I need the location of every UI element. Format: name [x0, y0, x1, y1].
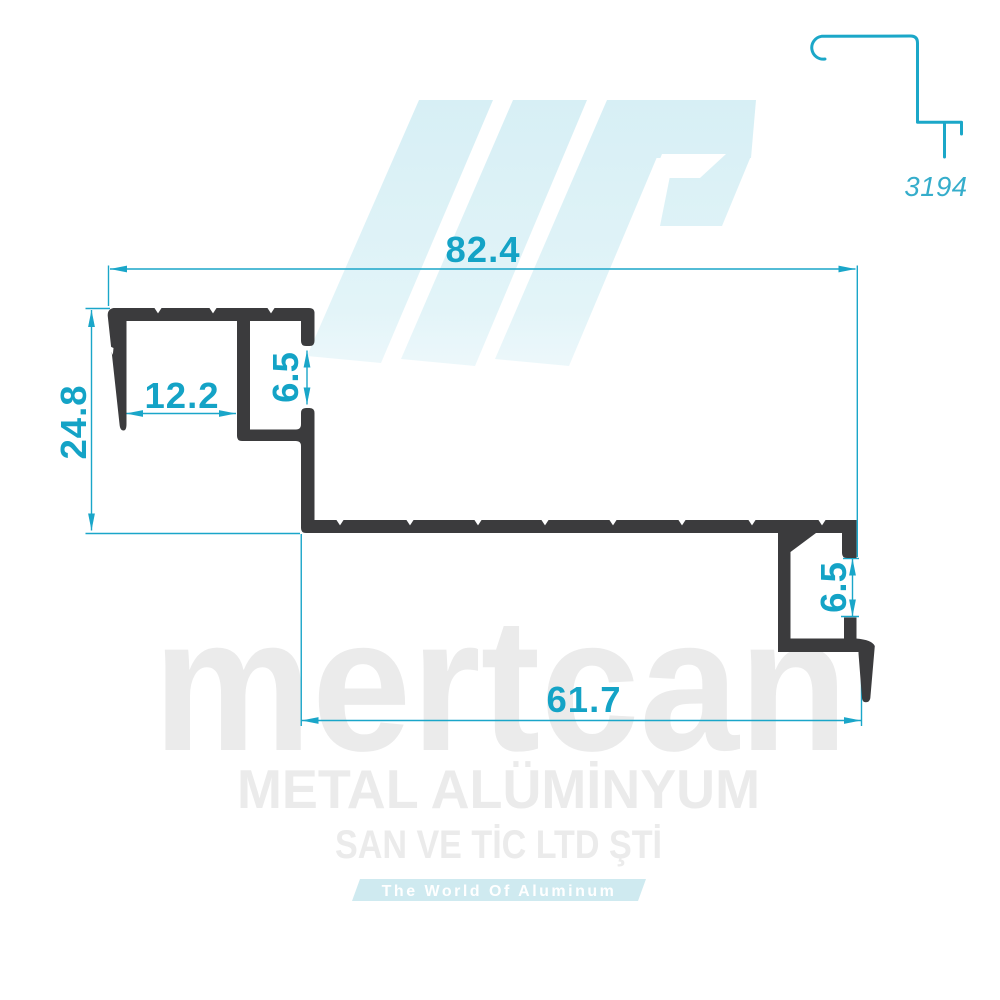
svg-text:6.5: 6.5 — [265, 352, 306, 403]
svg-text:24.8: 24.8 — [53, 384, 94, 459]
svg-text:3194: 3194 — [904, 171, 967, 202]
svg-text:82.4: 82.4 — [445, 229, 520, 270]
svg-text:6.5: 6.5 — [813, 562, 854, 613]
svg-text:The World Of Aluminum: The World Of Aluminum — [382, 883, 617, 900]
svg-text:61.7: 61.7 — [546, 679, 621, 720]
svg-text:METAL ALÜMİNYUM: METAL ALÜMİNYUM — [237, 758, 760, 820]
svg-text:12.2: 12.2 — [144, 375, 219, 416]
svg-text:SAN VE TİC LTD ŞTİ: SAN VE TİC LTD ŞTİ — [335, 823, 662, 867]
